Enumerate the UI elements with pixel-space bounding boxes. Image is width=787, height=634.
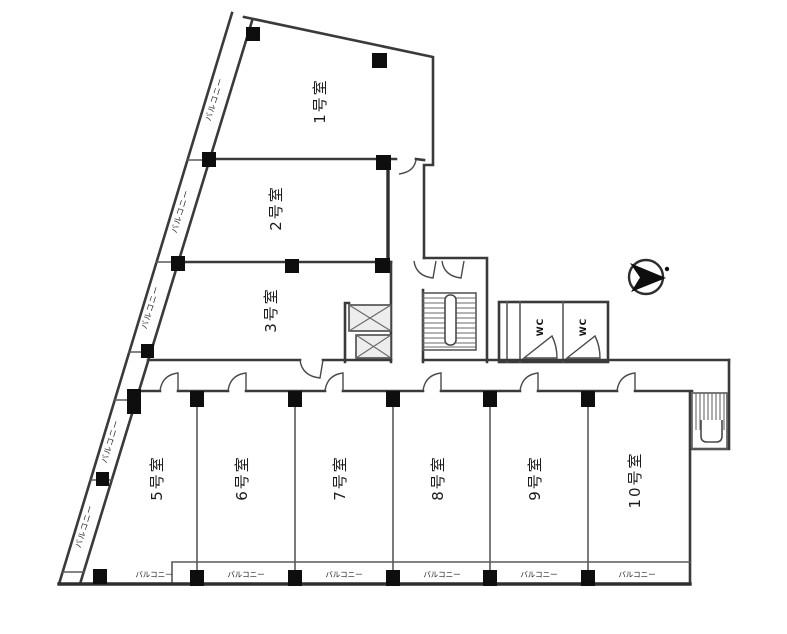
column xyxy=(127,389,141,414)
room1-room2-divider xyxy=(210,159,424,160)
wc-door-swing-2 xyxy=(567,336,600,358)
column xyxy=(202,152,216,167)
column xyxy=(171,256,185,271)
column xyxy=(386,570,400,586)
column xyxy=(372,53,387,68)
column xyxy=(288,570,302,586)
wc-label-1: WC xyxy=(536,318,546,337)
wc-block: WC WC xyxy=(499,302,608,362)
room-9-label: 9号室 xyxy=(526,455,544,501)
room-1-label: 1号室 xyxy=(311,78,329,124)
room3-door-arc xyxy=(300,360,323,378)
floor-plan-drawing: バルコニー バルコニー バルコニー バルコニー バルコニー 1号室 2号室 3号… xyxy=(0,0,787,634)
wc-label-2: WC xyxy=(579,318,589,337)
column xyxy=(96,472,109,486)
lower-rooms-walls: 5号室 6号室 7号室 8号室 9号室 10号室 xyxy=(59,393,690,584)
column xyxy=(93,569,107,584)
floor-plan: バルコニー バルコニー バルコニー バルコニー バルコニー 1号室 2号室 3号… xyxy=(0,0,787,634)
room-2-label: 2号室 xyxy=(267,185,285,231)
column xyxy=(483,391,497,407)
balcony-label: バルコニー xyxy=(520,570,557,579)
room-8-label: 8号室 xyxy=(429,455,447,501)
corridor-walls xyxy=(139,360,729,391)
column xyxy=(288,391,302,407)
balcony-label: バルコニー xyxy=(227,570,264,579)
room-10-label: 10号室 xyxy=(626,451,644,508)
balcony-inner-wall xyxy=(80,21,252,584)
room-6-label: 6号室 xyxy=(233,455,251,501)
room-7-label: 7号室 xyxy=(331,455,349,501)
column xyxy=(141,344,154,358)
room-5-label: 5号室 xyxy=(148,455,166,501)
column xyxy=(190,570,204,586)
column xyxy=(581,391,595,407)
column xyxy=(375,258,390,273)
column xyxy=(246,27,260,41)
north-arrow-dot xyxy=(665,267,669,271)
balcony-label: バルコニー xyxy=(135,570,172,579)
balcony-label: バルコニー xyxy=(325,570,362,579)
column xyxy=(190,391,204,407)
balcony-label: バルコニー xyxy=(618,570,655,579)
north-arrow-icon xyxy=(629,260,669,294)
upper-rooms-walls: 1号室 2号室 3号室 xyxy=(179,17,433,362)
column xyxy=(483,570,497,586)
column xyxy=(581,570,595,586)
column xyxy=(376,155,391,170)
room-3-label: 3号室 xyxy=(262,287,280,333)
wc-outer-wall xyxy=(499,302,608,362)
column xyxy=(386,391,400,407)
stair-rail xyxy=(445,295,456,345)
wc-door-swing-1 xyxy=(524,336,557,358)
elevator-icon xyxy=(345,303,391,362)
balcony-label: バルコニー xyxy=(423,570,460,579)
room-door-arcs xyxy=(160,373,635,391)
external-stairs-icon xyxy=(692,360,729,449)
room1-door-arc xyxy=(399,160,416,174)
balcony-outer-wall xyxy=(59,13,232,584)
column xyxy=(285,259,299,273)
stairwell-door-arcs xyxy=(414,261,464,278)
external-stair-rail xyxy=(701,420,722,442)
stairs-icon xyxy=(414,258,487,362)
wc-partitions xyxy=(507,302,563,362)
